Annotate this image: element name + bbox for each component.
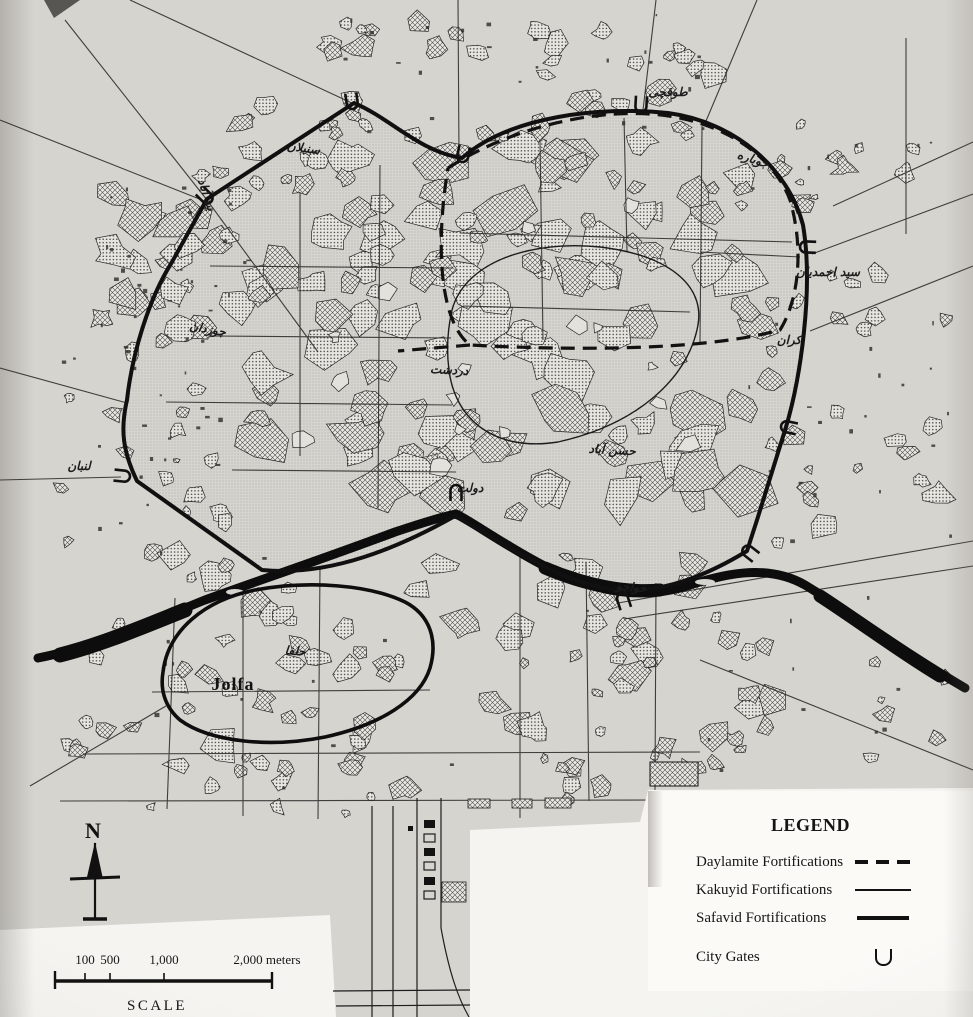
legend-label-daylamite: Daylamite Fortifications [696,854,843,871]
legend-rows: Daylamite Fortifications Kakuyid Fortifi… [648,848,973,971]
legend-row-daylamite: Daylamite Fortifications [648,848,973,876]
map-speck [164,458,166,461]
map-speck [259,611,262,614]
map-speck [134,316,137,319]
map-speck [931,445,935,447]
label-lunban: لنبان [67,459,93,473]
map-speck [720,769,724,772]
map-speck [350,18,352,23]
north-label: N [85,818,101,843]
map-speck [450,763,454,766]
map-speck [188,211,192,214]
map-speck [879,490,881,493]
label-karan: کران [777,333,805,348]
map-speck [419,71,422,75]
label-seyyed-ahmadian: سید احمدیان [796,265,861,279]
map-speck [383,639,387,642]
map-speck [282,787,285,790]
map-speck [487,23,492,27]
urban-block [367,792,375,800]
legend-title: LEGEND [648,815,973,836]
map-speck [775,323,778,326]
map-speck [214,285,217,287]
map-speck [180,269,182,271]
map-speck [801,708,805,711]
map-speck [147,504,149,506]
map-speck [216,464,221,466]
map-speck [698,56,701,59]
map-speck [167,640,170,644]
dashed-line-sample-icon [853,860,913,865]
map-speck [533,38,538,41]
map-speck [124,346,129,349]
map-speck [200,407,204,410]
map-speck [209,310,213,312]
map-speck [807,406,812,408]
map-speck [849,429,853,433]
map-speck [902,384,905,387]
map-speck [143,289,147,293]
map-speck [799,482,803,485]
scale-tick-2000: 2,000 meters [233,952,300,967]
map-speck [426,26,429,29]
map-speck [708,738,711,741]
map-speck [396,62,401,64]
map-speck [126,350,131,353]
map-speck [191,280,193,283]
label-tuqchi: طوقچی [648,85,688,100]
map-speck [119,522,123,524]
map-speck [930,142,932,144]
map-speck [114,278,119,282]
map-speck [110,248,113,252]
map-speck [128,255,131,258]
map-speck [688,87,691,92]
map-speck [370,31,375,35]
thin-line-sample-icon [853,889,913,891]
map-speck [62,361,66,364]
legend-label-city-gates: City Gates [696,949,760,966]
map-speck [228,293,230,297]
map-speck [331,744,336,747]
scale-tick-500: 500 [100,952,120,967]
map-speck [878,373,880,377]
map-speck [790,619,792,624]
label-jolfa-english: Jolfa [212,674,255,694]
map-speck [869,347,872,351]
legend-label-safavid: Safavid Fortifications [696,910,826,927]
legend-row-kakuyid: Kakuyid Fortifications [648,876,973,904]
thick-line-sample-icon [853,916,913,921]
map-speck [461,29,464,33]
map-speck [882,728,886,732]
map-speck [644,50,646,54]
scanned-map-page: N 100 500 1,000 2,000 meters SCALE بید آ… [0,0,973,1017]
legend-label-kakuyid: Kakuyid Fortifications [696,882,832,899]
legend-row-city-gates: City Gates [648,943,973,971]
map-speck [168,437,171,439]
map-speck [126,188,128,192]
map-speck [243,261,246,264]
map-speck [155,713,160,717]
map-speck [897,688,901,691]
map-speck [752,187,755,190]
scale-tick-100: 100 [75,952,95,967]
map-speck [196,426,200,429]
map-speck [855,144,858,147]
map-speck [536,66,539,68]
label-dowlat: دولت [457,481,484,496]
scale-tick-1000: 1,000 [149,952,178,967]
map-speck [695,75,700,79]
scale-caption: SCALE [127,998,187,1014]
map-speck [201,340,204,343]
map-speck [808,166,811,170]
map-speck [818,421,822,424]
map-speck [262,557,266,560]
map-speck [790,539,795,543]
city-gate-sample-icon [853,949,913,966]
map-speck [932,321,934,325]
map-speck [150,457,153,461]
map-speck [98,527,102,531]
map-speck [930,368,932,370]
map-speck [167,300,172,302]
map-speck [519,81,522,83]
map-speck [487,46,492,48]
map-speck [649,61,652,64]
map-speck [312,680,315,683]
map-speck [792,667,794,670]
map-speck [223,240,227,244]
map-speck [101,323,103,327]
map-speck [137,284,141,287]
walled-compound [650,762,698,786]
map-speck [110,196,112,198]
map-speck [947,412,949,415]
map-speck [813,493,816,498]
map-speck [344,58,348,61]
map-speck [140,476,143,479]
map-speck [607,59,609,63]
map-speck [182,187,186,190]
urban-block [581,213,596,227]
map-speck [656,14,658,16]
urban-block [173,459,180,463]
map-speck [228,189,231,192]
map-speck [827,155,829,160]
map-speck [949,535,952,538]
label-jolfa-persian: حلفا [284,643,307,659]
map-speck [142,425,147,427]
map-speck [178,306,180,308]
map-speck [642,126,647,129]
map-speck [218,418,223,422]
map-speck [229,203,232,206]
map-speck [160,394,162,396]
map-speck [430,117,434,120]
map-speck [186,337,189,341]
legend-row-safavid: Safavid Fortifications [648,904,973,932]
map-speck [73,358,76,360]
map-speck [867,596,869,600]
map-speck [185,371,187,374]
map-speck [106,245,108,249]
map-speck [160,552,162,556]
map-speck [121,268,125,272]
map-speck [748,385,750,389]
legend-panel: LEGEND Daylamite Fortifications Kakuyid … [648,791,973,991]
map-speck [367,131,371,134]
map-speck [205,416,210,419]
map-speck [864,415,866,417]
map-speck [98,445,101,448]
map-speck [917,144,919,148]
